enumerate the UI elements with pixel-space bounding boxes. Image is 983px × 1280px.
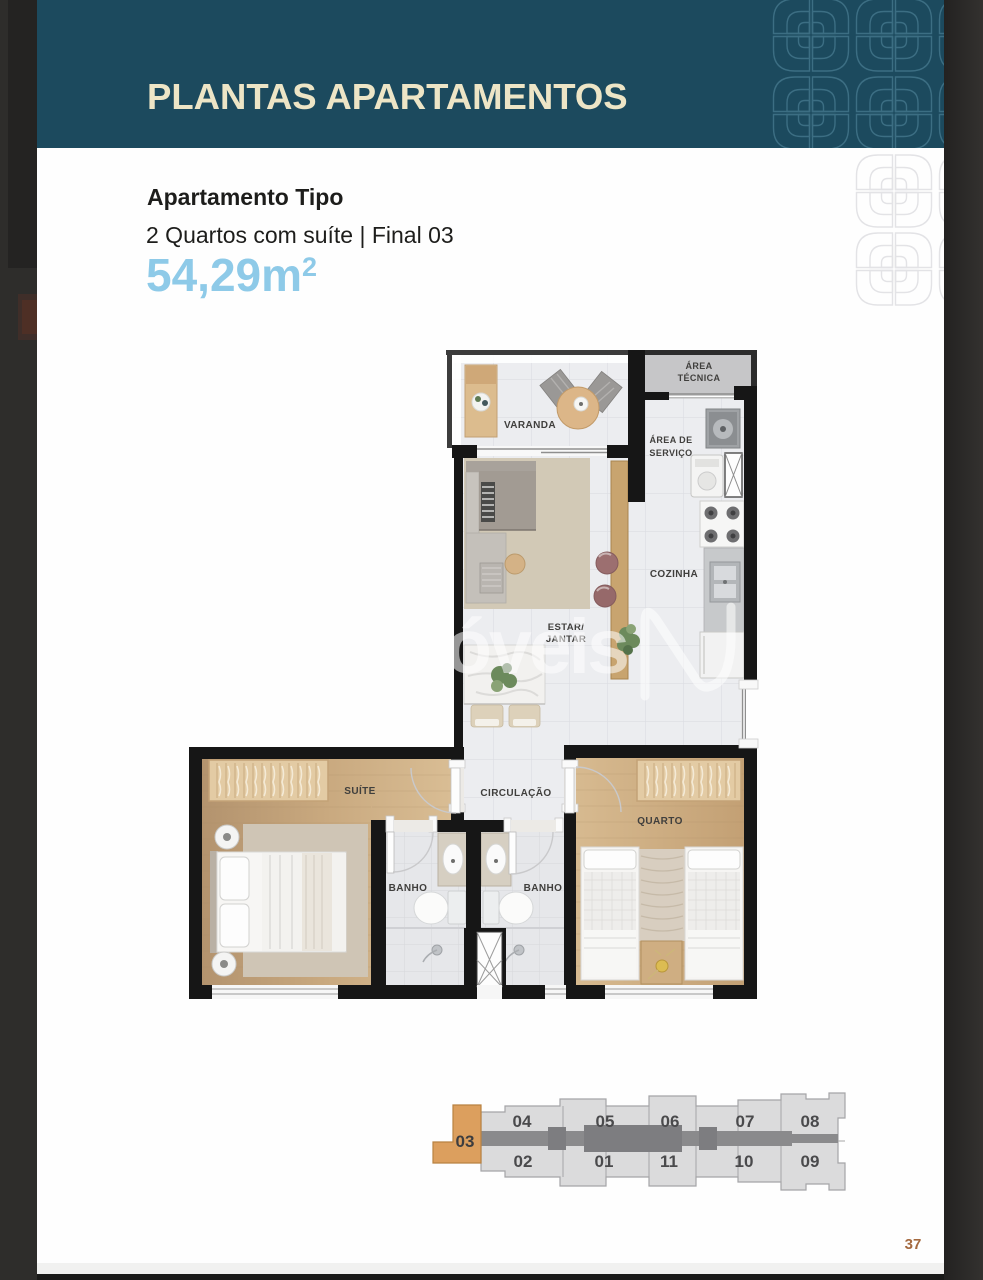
svg-text:PLANTAS APARTAMENTOS: PLANTAS APARTAMENTOS — [147, 76, 628, 117]
svg-text:SERVIÇO: SERVIÇO — [649, 448, 692, 458]
svg-text:BANHO: BANHO — [524, 883, 563, 894]
svg-text:11: 11 — [660, 1152, 678, 1171]
svg-text:BANHO: BANHO — [389, 883, 428, 894]
svg-text:06: 06 — [661, 1112, 680, 1131]
svg-text:01: 01 — [595, 1152, 614, 1171]
svg-text:QUARTO: QUARTO — [637, 816, 683, 827]
svg-text:05: 05 — [596, 1112, 615, 1131]
svg-text:37: 37 — [905, 1236, 922, 1253]
svg-text:COZINHA: COZINHA — [650, 569, 698, 580]
svg-text:08: 08 — [801, 1112, 820, 1131]
svg-text:04: 04 — [513, 1112, 532, 1131]
svg-text:ÁREA: ÁREA — [685, 361, 712, 371]
svg-text:VARANDA: VARANDA — [504, 420, 556, 431]
svg-text:2 Quartos com suíte | Final 03: 2 Quartos com suíte | Final 03 — [146, 222, 454, 248]
svg-text:54,29m2: 54,29m2 — [146, 249, 317, 301]
svg-text:ÁREA DE: ÁREA DE — [650, 435, 693, 445]
svg-text:CIRCULAÇÃO: CIRCULAÇÃO — [480, 786, 551, 799]
svg-text:03: 03 — [456, 1132, 475, 1151]
svg-text:TÉCNICA: TÉCNICA — [678, 373, 721, 383]
svg-text:óveis: óveis — [445, 604, 627, 690]
svg-text:10: 10 — [735, 1152, 754, 1171]
svg-text:09: 09 — [801, 1152, 820, 1171]
svg-text:02: 02 — [514, 1152, 533, 1171]
svg-text:07: 07 — [736, 1112, 755, 1131]
svg-text:Apartamento Tipo: Apartamento Tipo — [147, 184, 343, 210]
svg-text:SUÍTE: SUÍTE — [344, 784, 375, 797]
